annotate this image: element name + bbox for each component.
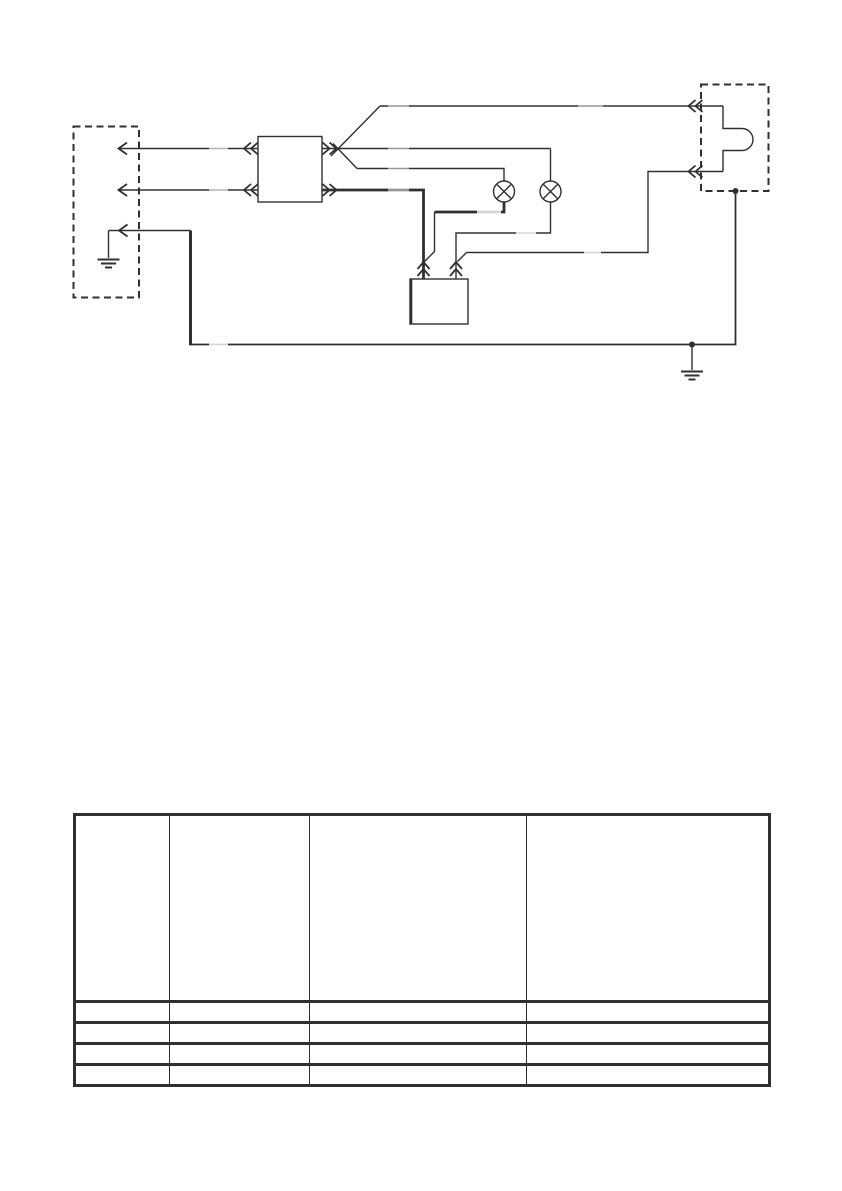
table-row: [75, 1065, 770, 1086]
table-cell: [527, 1044, 770, 1065]
table-cell: [310, 1023, 527, 1044]
table-cell: [75, 1065, 170, 1086]
left-dashed-connector-box: [74, 127, 140, 298]
plug-contour: [723, 106, 753, 172]
relay-box: [258, 137, 322, 203]
table-row: [75, 1023, 770, 1044]
table-cell: [527, 1023, 770, 1044]
wire-diagonal: [333, 144, 357, 169]
scanned-page: [0, 0, 842, 1191]
table-cell: [75, 815, 170, 1002]
box-outline: [410, 279, 468, 324]
table: [73, 813, 771, 1087]
whiteout-patch: [388, 99, 409, 192]
table-cell: [527, 1065, 770, 1086]
whiteout-patch: [516, 226, 536, 239]
junction-dot: [689, 342, 695, 348]
lamp-icon: [494, 181, 515, 202]
table-cell: [310, 1065, 527, 1086]
table-cell: [75, 1023, 170, 1044]
table-row: [75, 1044, 770, 1065]
wire: [357, 169, 504, 182]
wire-thick: [322, 190, 424, 279]
ground-icon: [681, 372, 703, 380]
table-row: [75, 815, 770, 1002]
table-cell: [170, 1065, 310, 1086]
wire: [458, 253, 467, 262]
connector-chevrons: [244, 100, 703, 276]
table-cell: [527, 1002, 770, 1023]
ground-icon: [98, 260, 120, 268]
table-row: [75, 1002, 770, 1023]
wire: [425, 212, 435, 262]
table-cell: [170, 1023, 310, 1044]
table-cell: [170, 1044, 310, 1065]
table-cell: [310, 1044, 527, 1065]
table-cell: [170, 815, 310, 1002]
dashed-outline: [74, 127, 140, 298]
blank-worksheet-table: [73, 813, 771, 1087]
table-cell: [170, 1002, 310, 1023]
lamp-icon: [540, 181, 561, 202]
table-cell: [527, 815, 770, 1002]
whiteout-patch: [578, 99, 603, 112]
table-cell: [310, 815, 527, 1002]
whiteout-patch: [209, 185, 228, 196]
table-cell: [75, 1002, 170, 1023]
whiteout-patch: [209, 337, 228, 351]
table-cell: [310, 1002, 527, 1023]
dashed-outline: [701, 85, 769, 192]
whiteout-patch: [477, 205, 501, 219]
wires: [109, 106, 736, 370]
control-unit-box: [410, 279, 468, 324]
wire: [189, 191, 736, 345]
whiteout-patch: [209, 143, 228, 154]
table-cell: [75, 1044, 170, 1065]
whiteout-patch: [584, 246, 601, 259]
right-dashed-plug-box: [701, 85, 769, 195]
